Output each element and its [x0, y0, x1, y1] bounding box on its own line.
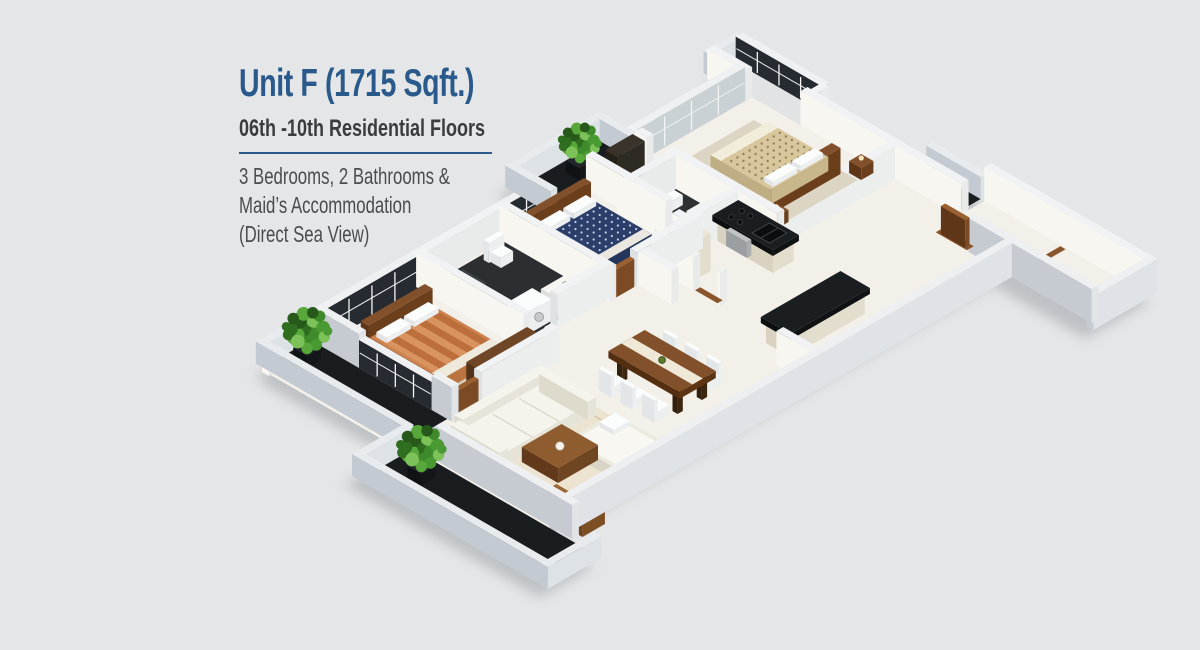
description-line-1: 3 Bedrooms, 2 Bathrooms &	[239, 162, 478, 191]
description-line-2: Maid’s Accommodation	[239, 191, 478, 220]
page: Unit F (1715 Sqft.) 06th -10th Residenti…	[0, 0, 1200, 650]
divider-line	[239, 152, 492, 154]
info-panel: Unit F (1715 Sqft.) 06th -10th Residenti…	[239, 62, 567, 250]
floors-subtitle: 06th -10th Residential Floors	[239, 115, 485, 143]
floorplan-render	[0, 0, 1200, 650]
unit-title: Unit F (1715 Sqft.)	[239, 62, 478, 106]
description-line-3: (Direct Sea View)	[239, 220, 478, 249]
